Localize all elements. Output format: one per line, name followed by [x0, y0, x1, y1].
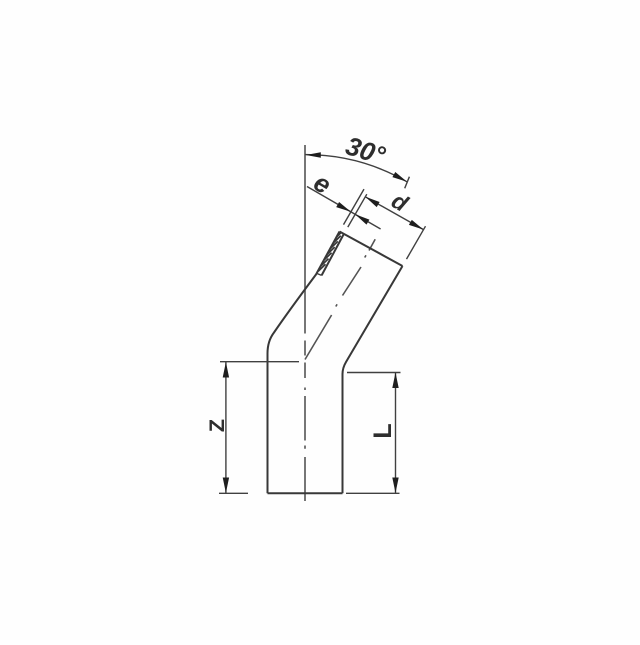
svg-text:L: L — [369, 423, 397, 438]
svg-text:Z: Z — [205, 419, 229, 432]
